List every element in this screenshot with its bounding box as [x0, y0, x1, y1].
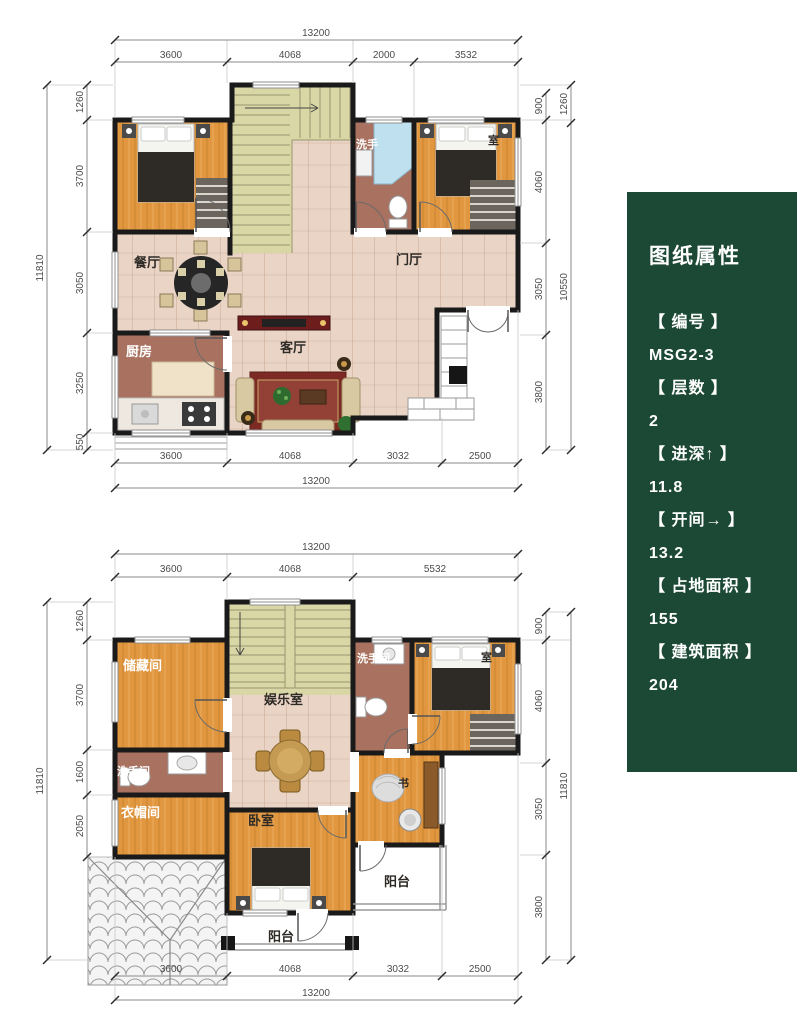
svg-text:3600: 3600 [160, 964, 183, 975]
study-label: 书 [398, 776, 409, 790]
panel-title: 图纸属性 [649, 240, 797, 270]
svg-text:3050: 3050 [534, 277, 545, 300]
attr-value-width: 13.2 [649, 537, 797, 570]
svg-text:3032: 3032 [387, 451, 410, 462]
svg-text:11810: 11810 [35, 767, 46, 795]
svg-text:2000: 2000 [373, 50, 396, 61]
toilet-icon [389, 196, 407, 228]
cloakroom-label: 衣帽间 [121, 805, 160, 820]
kitchen-label: 厨房 [126, 344, 152, 359]
svg-text:4068: 4068 [279, 50, 302, 61]
attr-label-width: 【 开间→ 】 [649, 504, 797, 537]
svg-text:2500: 2500 [469, 964, 492, 975]
svg-text:11810: 11810 [35, 254, 46, 282]
washroom-left-2f-label: 洗手间 [117, 764, 150, 778]
svg-text:3250: 3250 [75, 371, 86, 394]
attributes-panel: 图纸属性 【 编号 】 MSG2-3 【 层数 】 2 【 进深↑ 】 11.8… [627, 192, 797, 772]
room-storage [115, 640, 227, 750]
attr-label-floors: 【 层数 】 [649, 372, 797, 405]
first-floor-plan: 餐厅 门厅 厨房 客厅 洗手 室 13200 3600 4068 2000 35… [35, 28, 575, 492]
attr-label-building-area: 【 建筑面积 】 [649, 636, 797, 669]
svg-text:3050: 3050 [75, 271, 86, 294]
attr-value-floors: 2 [649, 405, 797, 438]
recreation-label: 娱乐室 [264, 692, 303, 707]
second-floor-plan: 储藏间 娱乐室 洗手间 室 洗手间 衣帽间 卧室 书 阳台 阳台 13200 3… [35, 542, 575, 1004]
svg-text:1260: 1260 [559, 92, 570, 115]
svg-text:3700: 3700 [75, 164, 86, 187]
svg-text:13200: 13200 [302, 28, 330, 39]
svg-text:3032: 3032 [387, 964, 410, 975]
bedroom-right-2f-label: 室 [481, 650, 492, 664]
svg-text:1260: 1260 [75, 609, 86, 632]
svg-text:3600: 3600 [160, 451, 183, 462]
svg-text:4068: 4068 [279, 451, 302, 462]
svg-text:2500: 2500 [469, 451, 492, 462]
svg-text:3050: 3050 [534, 797, 545, 820]
stairs-area-2f [227, 602, 353, 695]
balcony-bottom-label: 阳台 [268, 929, 294, 944]
svg-text:4060: 4060 [534, 170, 545, 193]
attr-value-building-area: 204 [649, 669, 797, 702]
foyer-label: 门厅 [396, 252, 422, 267]
svg-text:5532: 5532 [424, 564, 447, 575]
attr-value-number: MSG2-3 [649, 339, 797, 372]
roof-tiles [88, 857, 227, 985]
dining-label: 餐厅 [133, 255, 160, 270]
svg-text:13200: 13200 [302, 476, 330, 487]
attr-value-footprint-area: 155 [649, 603, 797, 636]
svg-text:4068: 4068 [279, 564, 302, 575]
svg-text:4068: 4068 [279, 964, 302, 975]
attr-label-depth: 【 进深↑ 】 [649, 438, 797, 471]
svg-text:3600: 3600 [160, 564, 183, 575]
bedroom-2f-label: 卧室 [248, 813, 274, 828]
attr-value-depth: 11.8 [649, 471, 797, 504]
attr-label-number: 【 编号 】 [649, 306, 797, 339]
washroom-1f-label: 洗手 [356, 137, 378, 151]
svg-text:4060: 4060 [534, 689, 545, 712]
storage-label: 储藏间 [122, 658, 162, 673]
svg-text:1260: 1260 [75, 90, 86, 113]
svg-text:13200: 13200 [302, 542, 330, 553]
living-label: 客厅 [280, 340, 306, 355]
washroom-top-2f-label: 洗手间 [357, 651, 390, 665]
svg-text:3800: 3800 [534, 895, 545, 918]
svg-text:900: 900 [534, 97, 545, 114]
svg-text:3800: 3800 [534, 380, 545, 403]
svg-text:13200: 13200 [302, 988, 330, 999]
svg-text:2050: 2050 [75, 814, 86, 837]
svg-text:11810: 11810 [559, 772, 570, 800]
svg-text:900: 900 [534, 617, 545, 634]
svg-text:3600: 3600 [160, 50, 183, 61]
bedroom-right-1f-label: 室 [488, 133, 499, 147]
svg-text:1600: 1600 [75, 760, 86, 783]
svg-text:3700: 3700 [75, 683, 86, 706]
balcony-right-label: 阳台 [384, 874, 410, 889]
svg-text:3532: 3532 [455, 50, 478, 61]
floor-plan-sheet: 餐厅 门厅 厨房 客厅 洗手 室 13200 3600 4068 2000 35… [0, 0, 800, 1030]
svg-text:550: 550 [75, 433, 86, 450]
tv-cabinet-icon [238, 316, 330, 330]
attr-label-footprint-area: 【 占地面积 】 [649, 570, 797, 603]
sink-icon [356, 150, 372, 176]
svg-text:10550: 10550 [559, 273, 570, 301]
